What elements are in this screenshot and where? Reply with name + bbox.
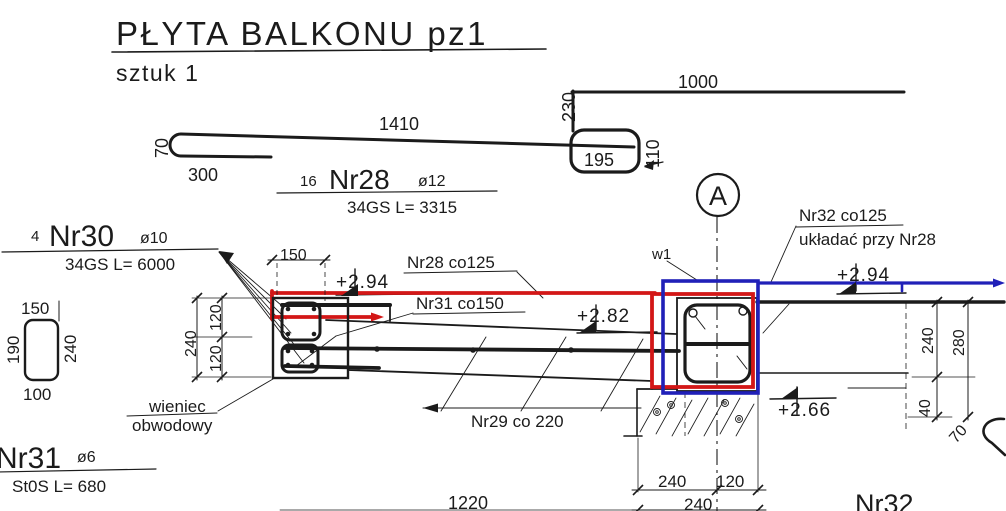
dim-40-right: 40	[917, 399, 934, 417]
level-294-left: +2.94	[336, 272, 389, 293]
nr29-arrowhead	[423, 404, 438, 413]
dim-195: 195	[584, 150, 614, 170]
callout-w1: w1	[651, 246, 671, 263]
dashed-linework	[277, 217, 906, 511]
note-wieniec-line1: wieniec	[148, 397, 206, 416]
dim-100-shape: 100	[23, 385, 51, 404]
dim-120-lower: 120	[208, 345, 225, 372]
hatch-1	[640, 396, 660, 432]
dim-240-beam: 240	[183, 330, 200, 357]
level-266-line	[770, 398, 836, 399]
label-nr32: Nr32	[855, 489, 914, 511]
rebar-ring-b	[739, 307, 747, 315]
slab-bottom	[348, 370, 652, 381]
hatch-5	[704, 400, 724, 436]
dim-280-right: 280	[951, 329, 968, 356]
level-266: +2.66	[778, 400, 831, 421]
count-nr30: 4	[31, 228, 39, 245]
fan-4	[219, 252, 297, 348]
rebar-dot	[286, 363, 291, 368]
rebar-dot	[310, 363, 315, 368]
drawing-canvas: PŁYTA BALKONU pz1sztuk 11410300702301000…	[0, 0, 1006, 511]
dim-300: 300	[188, 165, 218, 185]
dim-230: 230	[559, 92, 579, 122]
leader-w1	[667, 261, 700, 282]
rebar-dot	[310, 349, 315, 354]
rebar-dot	[286, 332, 291, 337]
dim-70-nr28: 70	[152, 138, 172, 158]
tick-stirrup-b	[737, 356, 747, 369]
diag-right-slab	[763, 304, 789, 333]
masonry-sym-1a	[654, 409, 661, 416]
mid-bar	[284, 348, 679, 351]
level-tri-266	[781, 387, 798, 399]
masonry-sym-1b	[656, 411, 659, 414]
nr32co-underline	[796, 225, 903, 227]
rebar-dot	[470, 347, 476, 353]
dim-120-upper: 120	[208, 304, 225, 331]
dim-190-shape: 190	[4, 336, 23, 364]
dim-110: 110	[643, 139, 663, 168]
spec-nr30: 34GS L= 6000	[65, 255, 175, 274]
note-wieniec-line2: obwodowy	[132, 416, 213, 435]
dim-1220: 1220	[448, 493, 488, 511]
nr28bar-foot	[181, 156, 271, 157]
annotations: PŁYTA BALKONU pz1sztuk 11410300702301000…	[0, 15, 971, 511]
fan-2	[219, 252, 286, 319]
fan-arrowhead	[219, 251, 234, 264]
callout-nr31: Nr31 co150	[416, 294, 504, 313]
nr31-stirrup-shape	[25, 320, 58, 380]
count-nr28: 16	[300, 173, 317, 190]
leader-nr32	[771, 226, 796, 282]
masonry-sym-3b	[724, 402, 727, 405]
label-nr31: Nr31	[0, 442, 61, 475]
level-282: +2.82	[577, 306, 630, 327]
nr28bar-main	[181, 134, 634, 147]
hatch-3	[672, 400, 692, 436]
hatch-4	[688, 398, 708, 434]
dim-240-wall: 240	[658, 472, 686, 491]
dim-120-wall: 120	[716, 472, 744, 491]
nr32-hook	[983, 419, 1005, 455]
dia-nr30: ø10	[140, 230, 168, 247]
label-nr28: Nr28	[329, 164, 390, 195]
dia-nr31: ø6	[77, 449, 96, 466]
spec-nr31: St0S L= 680	[12, 477, 106, 496]
red-highlight-box	[652, 294, 753, 387]
masonry-sym-2b	[670, 404, 673, 407]
rebar-ring-a	[689, 309, 697, 317]
callout-nr29: Nr29 co 220	[471, 412, 564, 431]
callout-nr32-line1: Nr32 co125	[799, 206, 887, 225]
rebar-dot	[312, 307, 317, 312]
dim-150-shape: 150	[21, 299, 49, 318]
dim-1000: 1000	[678, 72, 718, 92]
dim-70-nr32: 70	[946, 422, 971, 447]
tick-stirrup-a	[695, 316, 705, 329]
callout-nr32-line2: układać przy Nr28	[799, 230, 936, 249]
callout-nr28: Nr28 co125	[407, 253, 495, 272]
balcony-slab-reinforcement-drawing: PŁYTA BALKONU pz1sztuk 11410300702301000…	[0, 0, 1006, 511]
blue-arrowhead	[993, 279, 1005, 288]
spec-nr28: 34GS L= 3315	[347, 198, 457, 217]
rebar-dot	[374, 346, 380, 352]
red-arrowhead	[371, 313, 384, 322]
dim-1410: 1410	[379, 114, 419, 134]
masonry-sym-4b	[738, 418, 741, 421]
rebar-dot	[568, 347, 574, 353]
subtitle: sztuk 1	[116, 60, 199, 86]
hatch-2	[656, 398, 676, 434]
label-nr30: Nr30	[49, 220, 114, 253]
low-bar	[285, 366, 379, 368]
rebar-dot	[286, 349, 291, 354]
level-294-right: +2.94	[837, 265, 890, 286]
dim-150-beam: 150	[280, 247, 307, 264]
dia-nr28: ø12	[418, 173, 446, 190]
leader-wieniec	[218, 379, 273, 411]
masonry-sym-4a	[736, 416, 743, 423]
dim-240-wall2: 240	[684, 495, 712, 511]
rebar-dot	[286, 307, 291, 312]
section-letter: A	[709, 181, 727, 211]
title: PŁYTA BALKONU pz1	[116, 15, 488, 52]
rebar-dot	[312, 332, 317, 337]
dim-240-right: 240	[920, 327, 937, 354]
dim-240-shape: 240	[61, 335, 80, 363]
